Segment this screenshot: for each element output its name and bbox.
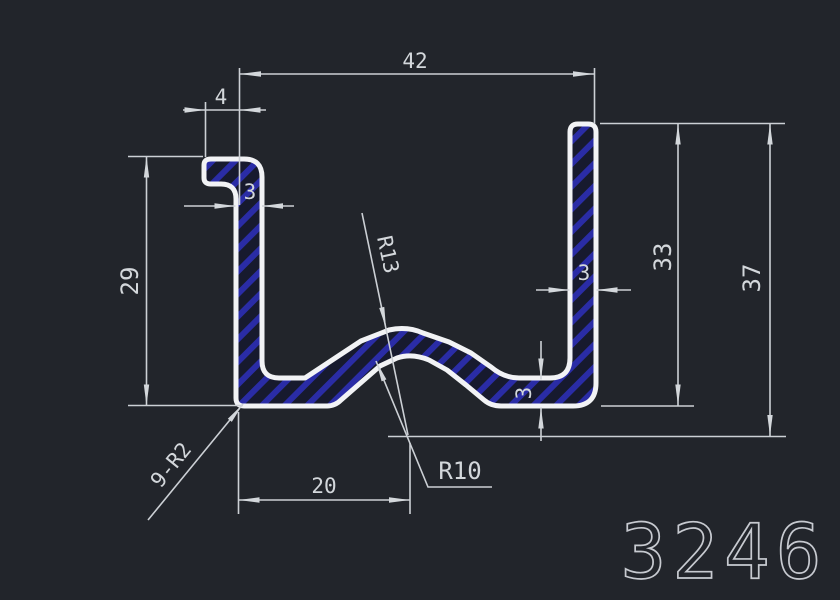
dim-text-rib-offset: 20	[311, 474, 336, 498]
dim-text-lip-width: 4	[215, 85, 228, 109]
dim-text-bottom-thickness: 3	[512, 387, 536, 400]
dim-text-right-inner-height: 33	[649, 243, 677, 272]
leader-text-corner-radii: 9-R2	[146, 438, 196, 492]
dim-rib-offset: 20	[239, 412, 411, 514]
dim-text-left-wall-thickness: 3	[244, 180, 257, 204]
dim-lip-width: 4	[183, 85, 266, 157]
leader-outer-rib-radius: R13	[362, 213, 408, 435]
dim-overall-width: 42	[240, 49, 595, 205]
dim-text-left-height: 29	[116, 267, 144, 296]
dim-left-height: 29	[116, 157, 243, 406]
leader-text-inner-rib-radius: R10	[438, 457, 481, 485]
part-number: 3246	[620, 507, 827, 596]
profile-drawing: 42 4 3 29 3 33 37	[0, 0, 840, 600]
leader-text-outer-rib-radius: R13	[372, 233, 403, 275]
dim-text-overall-height: 37	[738, 264, 766, 293]
cad-drawing-canvas[interactable]: 42 4 3 29 3 33 37	[0, 0, 840, 600]
dim-text-overall-width: 42	[402, 49, 427, 73]
leader-corner-radii: 9-R2	[146, 404, 243, 520]
dim-text-right-wall-thickness: 3	[578, 261, 591, 285]
